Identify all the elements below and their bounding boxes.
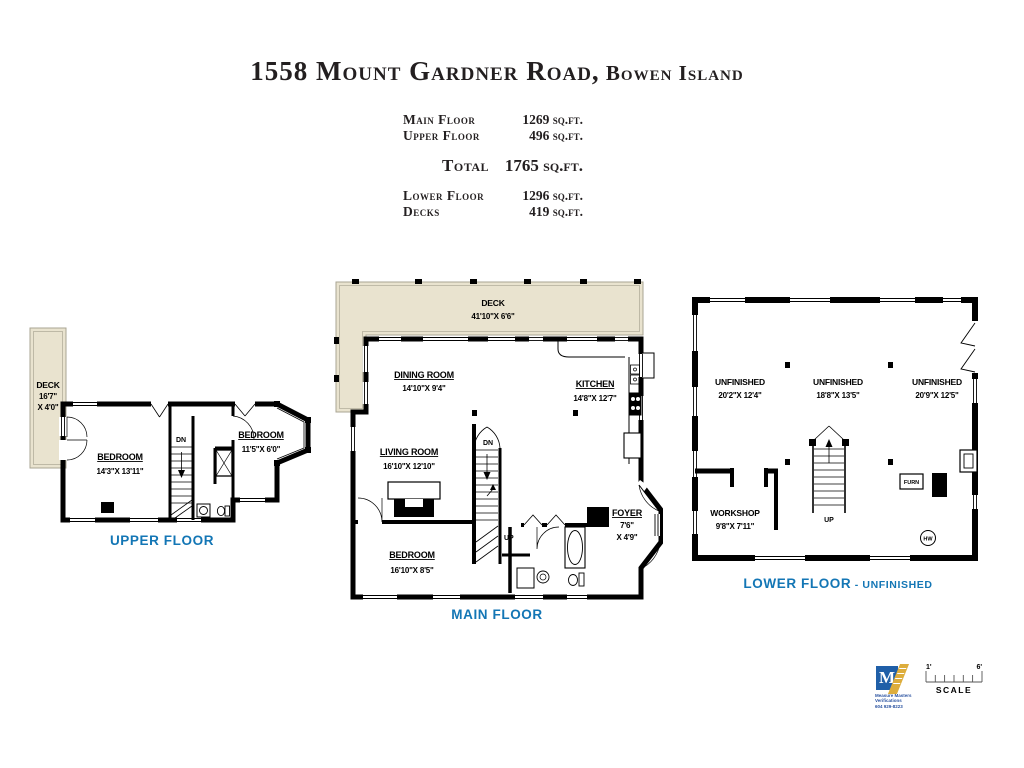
hot-water-label: HW xyxy=(923,537,933,543)
room-label: BEDROOM xyxy=(238,430,284,440)
room-dims: 14'3"X 13'11" xyxy=(96,467,143,476)
stairs-dn-label: DN xyxy=(483,440,493,447)
room-dims: 14'8"X 12'7" xyxy=(573,394,617,403)
room-dims: 20'2"X 12'4" xyxy=(718,391,762,400)
area-value: 419 sq.ft. xyxy=(503,204,583,220)
area-label: Decks xyxy=(403,204,503,220)
main-stairs: DN UP xyxy=(474,427,514,562)
room-label: UNFINISHED xyxy=(813,377,863,387)
upper-floor-caption: UPPER FLOOR xyxy=(82,533,242,548)
room-dims: 11'5"X 6'0" xyxy=(242,445,281,454)
furnace-label: FURN xyxy=(904,480,919,486)
logo-phone: 604 929-8223 xyxy=(875,704,937,709)
room-dims: 20'9"X 12'5" xyxy=(915,391,959,400)
table-row: Lower Floor 1296 sq.ft. xyxy=(403,188,583,204)
fireplace xyxy=(388,482,440,517)
room-label: LIVING ROOM xyxy=(380,447,438,457)
page-title: 1558 Mount Gardner Road, Bowen Island xyxy=(0,56,994,87)
room-dims: 7'6" xyxy=(620,521,634,530)
lower-floor-caption: LOWER FLOOR - UNFINISHED xyxy=(713,576,963,591)
post xyxy=(472,410,477,416)
stairs-up-label: UP xyxy=(504,535,514,542)
floor-plan-sheet: 1558 Mount Gardner Road, Bowen Island Ma… xyxy=(0,0,1024,768)
scale-left-label: 1' xyxy=(926,664,932,671)
lower-floor-caption-main: LOWER FLOOR xyxy=(743,576,851,591)
main-bathroom xyxy=(517,527,585,588)
upper-floor-plan: DECK 16'7" X 4'0" xyxy=(25,320,317,532)
lower-floor-caption-suffix: - UNFINISHED xyxy=(851,579,932,591)
room-label: BEDROOM xyxy=(97,452,143,462)
area-value: 1296 sq.ft. xyxy=(503,188,583,204)
scale-bar: 1' 6' SCALE xyxy=(922,660,988,698)
main-deck: DECK 41'10"X 6'6" xyxy=(334,279,643,412)
post xyxy=(573,410,578,416)
area-table: Main Floor 1269 sq.ft. Upper Floor 496 s… xyxy=(403,112,583,220)
room-label: DINING ROOM xyxy=(394,370,454,380)
table-row: Upper Floor 496 sq.ft. xyxy=(403,128,583,144)
table-row: Main Floor 1269 sq.ft. xyxy=(403,112,583,128)
chimney xyxy=(101,502,114,513)
room-label: UNFINISHED xyxy=(912,377,962,387)
table-row-total: Total 1765 sq.ft. xyxy=(403,155,583,176)
title-city: Bowen Island xyxy=(600,61,744,85)
room-label: FOYER xyxy=(612,508,643,518)
title-address: 1558 Mount Gardner Road, xyxy=(250,56,599,86)
area-label: Lower Floor xyxy=(403,188,503,204)
room-dims: X 4'9" xyxy=(617,533,638,542)
total-label: Total xyxy=(403,155,489,176)
upper-stairs: DN xyxy=(171,437,192,518)
deck-dim: X 4'0" xyxy=(38,403,59,412)
stairs-up-label: UP xyxy=(824,517,834,524)
room-label: KITCHEN xyxy=(576,379,615,389)
room-dims: 18'8"X 13'5" xyxy=(816,391,860,400)
room-label: BEDROOM xyxy=(389,550,435,560)
total-value: 1765 sq.ft. xyxy=(503,155,583,176)
deck-dim: 16'7" xyxy=(39,392,57,401)
area-value: 496 sq.ft. xyxy=(503,128,583,144)
scale-label: SCALE xyxy=(936,685,972,695)
room-label: WORKSHOP xyxy=(710,508,760,518)
room-dims: 16'10"X 8'5" xyxy=(390,566,434,575)
chimney xyxy=(932,473,947,497)
area-label: Upper Floor xyxy=(403,128,503,144)
main-floor-plan: DECK 41'10"X 6'6" xyxy=(333,274,663,609)
stairs-dn-label: DN xyxy=(176,437,186,444)
scale-right-label: 6' xyxy=(976,664,982,671)
room-dims: 14'10"X 9'4" xyxy=(402,384,446,393)
room-dims: 16'10"X 12'10" xyxy=(383,462,435,471)
room-dims: 9'8"X 7'11" xyxy=(716,522,755,531)
deck-label: DECK xyxy=(36,380,60,390)
deck-label: DECK xyxy=(481,298,505,308)
lower-floor-plan: UP FURN HW UNFINISHED 20'2"X 12'4" UNFIN… xyxy=(688,291,988,571)
area-label: Main Floor xyxy=(403,112,503,128)
main-floor-caption: MAIN FLOOR xyxy=(417,607,577,622)
room-label: UNFINISHED xyxy=(715,377,765,387)
deck-dims: 41'10"X 6'6" xyxy=(471,312,515,321)
area-value: 1269 sq.ft. xyxy=(503,112,583,128)
table-row: Decks 419 sq.ft. xyxy=(403,204,583,220)
